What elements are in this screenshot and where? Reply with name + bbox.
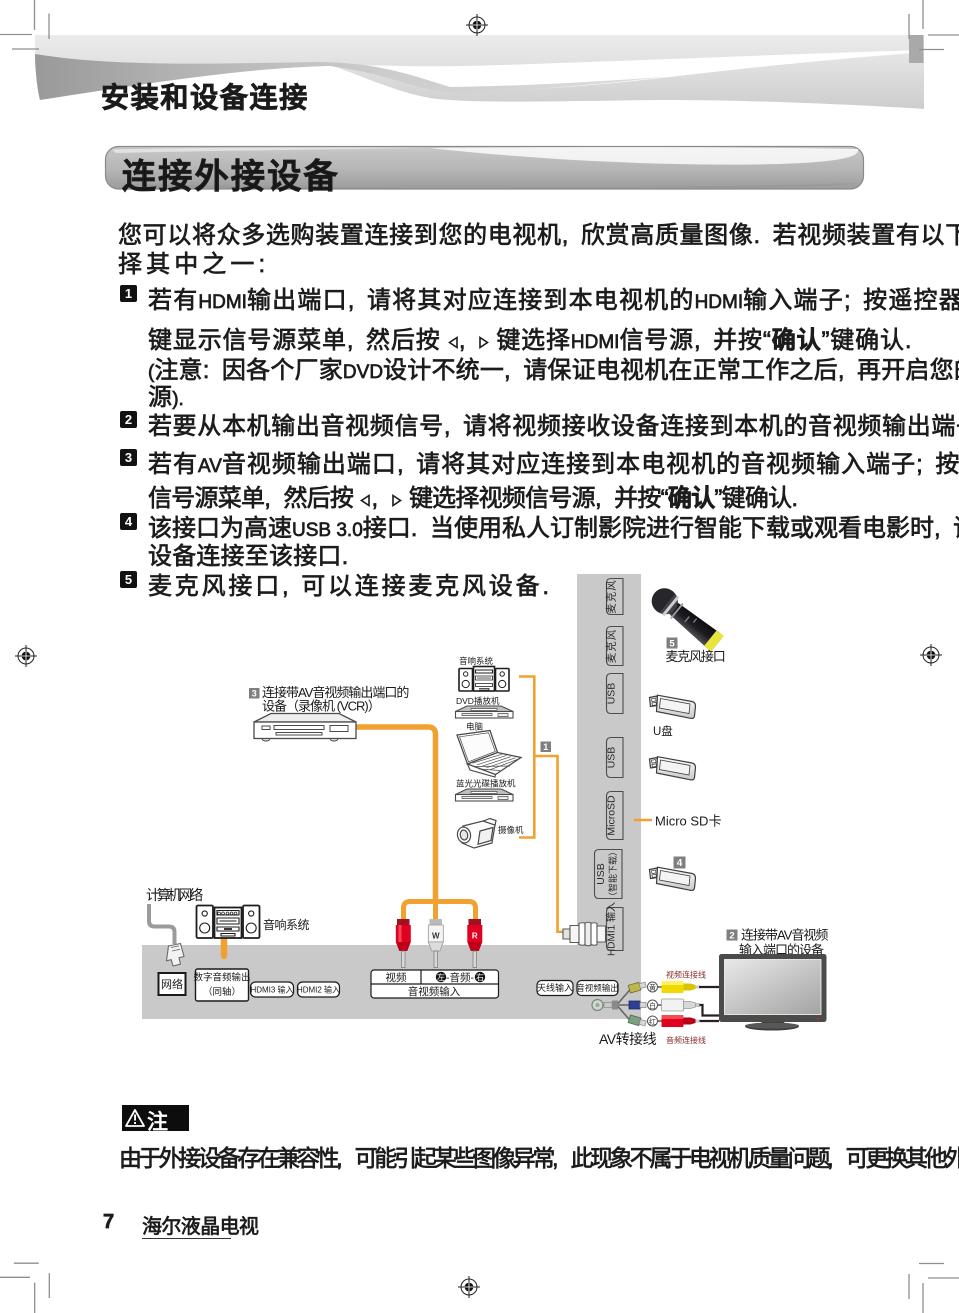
svg-text:红: 红 — [649, 1017, 656, 1026]
svg-text:蓝光光碟播放机: 蓝光光碟播放机 — [456, 779, 516, 789]
svg-text:网络: 网络 — [161, 977, 183, 991]
svg-text:黄: 黄 — [649, 983, 656, 992]
svg-text:白: 白 — [649, 1001, 656, 1010]
svg-text:左: 左 — [437, 972, 445, 982]
svg-text:音视频输入: 音视频输入 — [408, 985, 461, 998]
svg-text:（同轴）: （同轴） — [203, 986, 241, 998]
svg-text:U盘: U盘 — [653, 724, 673, 738]
svg-text:天线输入: 天线输入 — [537, 982, 573, 993]
svg-text:3: 3 — [252, 689, 257, 699]
svg-text:麦克风接口: 麦克风接口 — [666, 649, 725, 664]
svg-text:设备（录像机 (VCR)）: 设备（录像机 (VCR)） — [262, 699, 380, 714]
svg-text:1: 1 — [543, 742, 548, 752]
svg-text:（智能下载）: （智能下载） — [607, 847, 618, 901]
svg-text:2: 2 — [729, 931, 734, 942]
svg-text:Micro SD卡: Micro SD卡 — [655, 814, 721, 829]
svg-text:连接带AV音视频: 连接带AV音视频 — [741, 928, 828, 943]
svg-text:USB: USB — [606, 747, 618, 769]
svg-text:USB: USB — [606, 683, 618, 705]
svg-text:4: 4 — [677, 858, 683, 869]
svg-text:USB: USB — [595, 863, 607, 885]
svg-text:HDMI2 输入: HDMI2 输入 — [297, 985, 340, 995]
svg-text:音频连接线: 音频连接线 — [666, 1035, 706, 1045]
svg-text:W: W — [432, 932, 440, 941]
svg-text:音响系统: 音响系统 — [263, 917, 310, 932]
svg-text:DVD播放机: DVD播放机 — [456, 696, 500, 706]
svg-text:音视频输出: 音视频输出 — [576, 983, 619, 993]
svg-text:视频: 视频 — [386, 971, 407, 984]
svg-text:麦克风: 麦克风 — [606, 629, 618, 664]
svg-text:HDMI3 输入: HDMI3 输入 — [250, 985, 293, 995]
svg-text:HDMI1 输入: HDMI1 输入 — [605, 902, 618, 956]
svg-text:摄像机: 摄像机 — [498, 825, 524, 835]
svg-text:AV转接线: AV转接线 — [599, 1031, 657, 1047]
svg-text:视频连接线: 视频连接线 — [666, 970, 706, 980]
svg-text:-音频-: -音频- — [446, 971, 474, 984]
svg-text:麦克风: 麦克风 — [606, 579, 618, 614]
svg-text:MicroSD: MicroSD — [606, 795, 618, 836]
svg-text:5: 5 — [669, 639, 675, 650]
svg-text:数字音频输出: 数字音频输出 — [193, 972, 250, 984]
svg-text:电脑: 电脑 — [466, 722, 484, 732]
svg-text:R: R — [472, 932, 478, 941]
svg-text:右: 右 — [476, 972, 484, 982]
svg-text:计算机网络: 计算机网络 — [146, 887, 203, 903]
svg-text:音响系统: 音响系统 — [459, 656, 494, 666]
